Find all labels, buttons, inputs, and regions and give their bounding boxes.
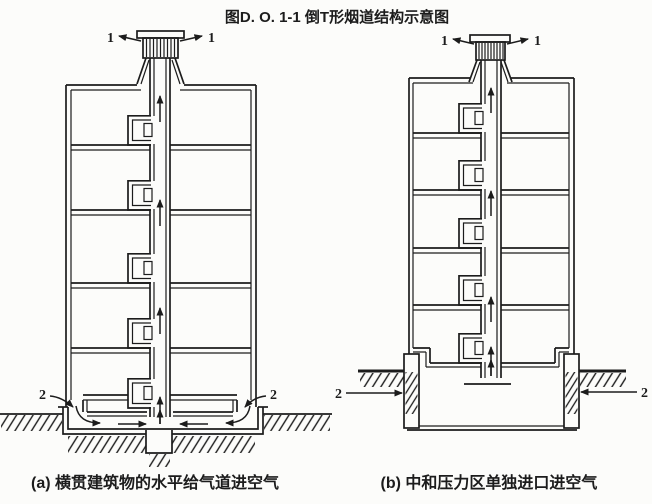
ground-hatch-left-a [1,415,62,431]
flue-structure-figure: 图D. O. 1-1 倒T形烟道结构示意图 [0,0,652,504]
intake-arrows-a: 2 2 [39,388,277,407]
diagram-b: 1 1 2 2 [335,34,648,430]
label-outlet-left-a: 1 [107,31,114,46]
building-shell-a [66,85,256,407]
horizontal-supply-duct-a [58,400,268,434]
duct-flow-arrows-a [76,406,250,424]
cap-plate-a [137,31,184,38]
intake-louver-right-b [564,354,579,428]
caption-b: (b) 中和压力区单独进口进空气 [381,473,598,492]
chimney-cap-a [137,31,184,84]
ground-hatch-right-a [264,415,330,431]
label-inlet-right-b: 2 [641,386,648,401]
label-inlet-left-b: 2 [335,387,342,402]
intake-arrows-b: 2 2 [335,386,648,402]
figure-page: 图D. O. 1-1 倒T形烟道结构示意图 [0,0,652,504]
label-inlet-right-a: 2 [270,388,277,403]
diagram-a: 1 1 2 2 [0,31,332,467]
chimney-cap-b [469,35,512,82]
label-inlet-left-a: 2 [39,388,46,403]
label-outlet-left-b: 1 [441,34,448,49]
floor-slabs-b [413,133,569,367]
figure-title: 图D. O. 1-1 倒T形烟道结构示意图 [225,8,449,26]
duct-cleanout-box-a [146,430,172,467]
label-outlet-right-b: 1 [534,34,541,49]
floor-slabs-a [71,145,251,400]
cap-plate-b [470,35,510,42]
label-outlet-right-a: 1 [208,31,215,46]
building-shell-b [407,78,577,430]
intake-louver-left-b [404,354,419,428]
caption-a: (a) 横贯建筑物的水平给气道进空气 [31,473,279,492]
